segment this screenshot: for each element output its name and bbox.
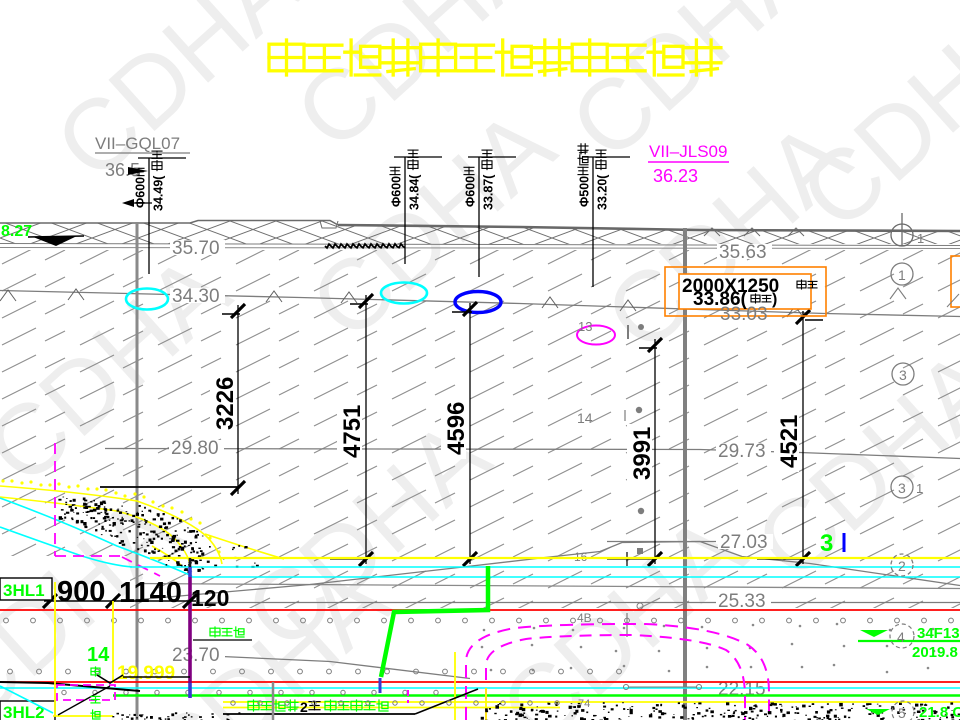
svg-text:29.73: 29.73 <box>718 441 766 462</box>
svg-text:3HL1: 3HL1 <box>3 581 45 600</box>
svg-text:2: 2 <box>898 558 906 574</box>
svg-text:VII–JLS09: VII–JLS09 <box>649 142 727 161</box>
svg-text:35.70: 35.70 <box>172 238 220 259</box>
svg-text:4751: 4751 <box>339 405 366 458</box>
svg-text:34F13: 34F13 <box>917 625 960 642</box>
svg-text:5: 5 <box>898 705 906 720</box>
svg-text:33.87(: 33.87( <box>482 174 496 210</box>
svg-text:35.63: 35.63 <box>719 242 767 263</box>
svg-text:14: 14 <box>87 644 110 666</box>
svg-text:3: 3 <box>820 530 833 557</box>
svg-text:14: 14 <box>577 410 593 426</box>
svg-text:33.03: 33.03 <box>720 304 768 325</box>
svg-text:1: 1 <box>898 267 906 283</box>
svg-text:1: 1 <box>917 231 924 246</box>
svg-text:23.70: 23.70 <box>172 645 220 666</box>
svg-text:8.27: 8.27 <box>1 223 32 240</box>
svg-text:): ) <box>772 291 777 308</box>
svg-text:36.23: 36.23 <box>653 166 698 186</box>
svg-text:2019.8: 2019.8 <box>912 644 958 661</box>
svg-text:34.49(: 34.49( <box>152 175 166 211</box>
svg-text:1: 1 <box>916 481 923 496</box>
svg-text:27.03: 27.03 <box>720 532 768 553</box>
svg-text:19.999: 19.999 <box>117 663 175 684</box>
svg-text:21.8 C: 21.8 C <box>919 704 960 720</box>
svg-text:1140: 1140 <box>119 577 182 609</box>
svg-text:900: 900 <box>57 576 105 608</box>
svg-text:4: 4 <box>897 629 905 645</box>
svg-text:2: 2 <box>300 699 308 715</box>
svg-text:3: 3 <box>898 480 906 496</box>
svg-text:Φ600: Φ600 <box>390 176 404 207</box>
svg-text:33.20(: 33.20( <box>596 174 610 210</box>
svg-text:3991: 3991 <box>629 427 656 480</box>
svg-text:34.30: 34.30 <box>172 286 220 307</box>
svg-text:120: 120 <box>191 585 229 611</box>
svg-text:3: 3 <box>899 367 907 383</box>
svg-text:13: 13 <box>578 319 592 334</box>
svg-text:34.84(: 34.84( <box>408 174 422 210</box>
svg-text:29.80: 29.80 <box>171 438 219 459</box>
svg-text:VII–GQL07: VII–GQL07 <box>95 134 180 153</box>
svg-text:4521: 4521 <box>776 415 803 468</box>
svg-text:Φ500: Φ500 <box>578 176 592 207</box>
svg-text:4B: 4B <box>577 611 592 625</box>
svg-text:Φ600: Φ600 <box>464 176 478 207</box>
svg-text:4596: 4596 <box>443 402 470 455</box>
svg-text:25.33: 25.33 <box>718 591 766 612</box>
svg-text:3226: 3226 <box>212 377 239 430</box>
